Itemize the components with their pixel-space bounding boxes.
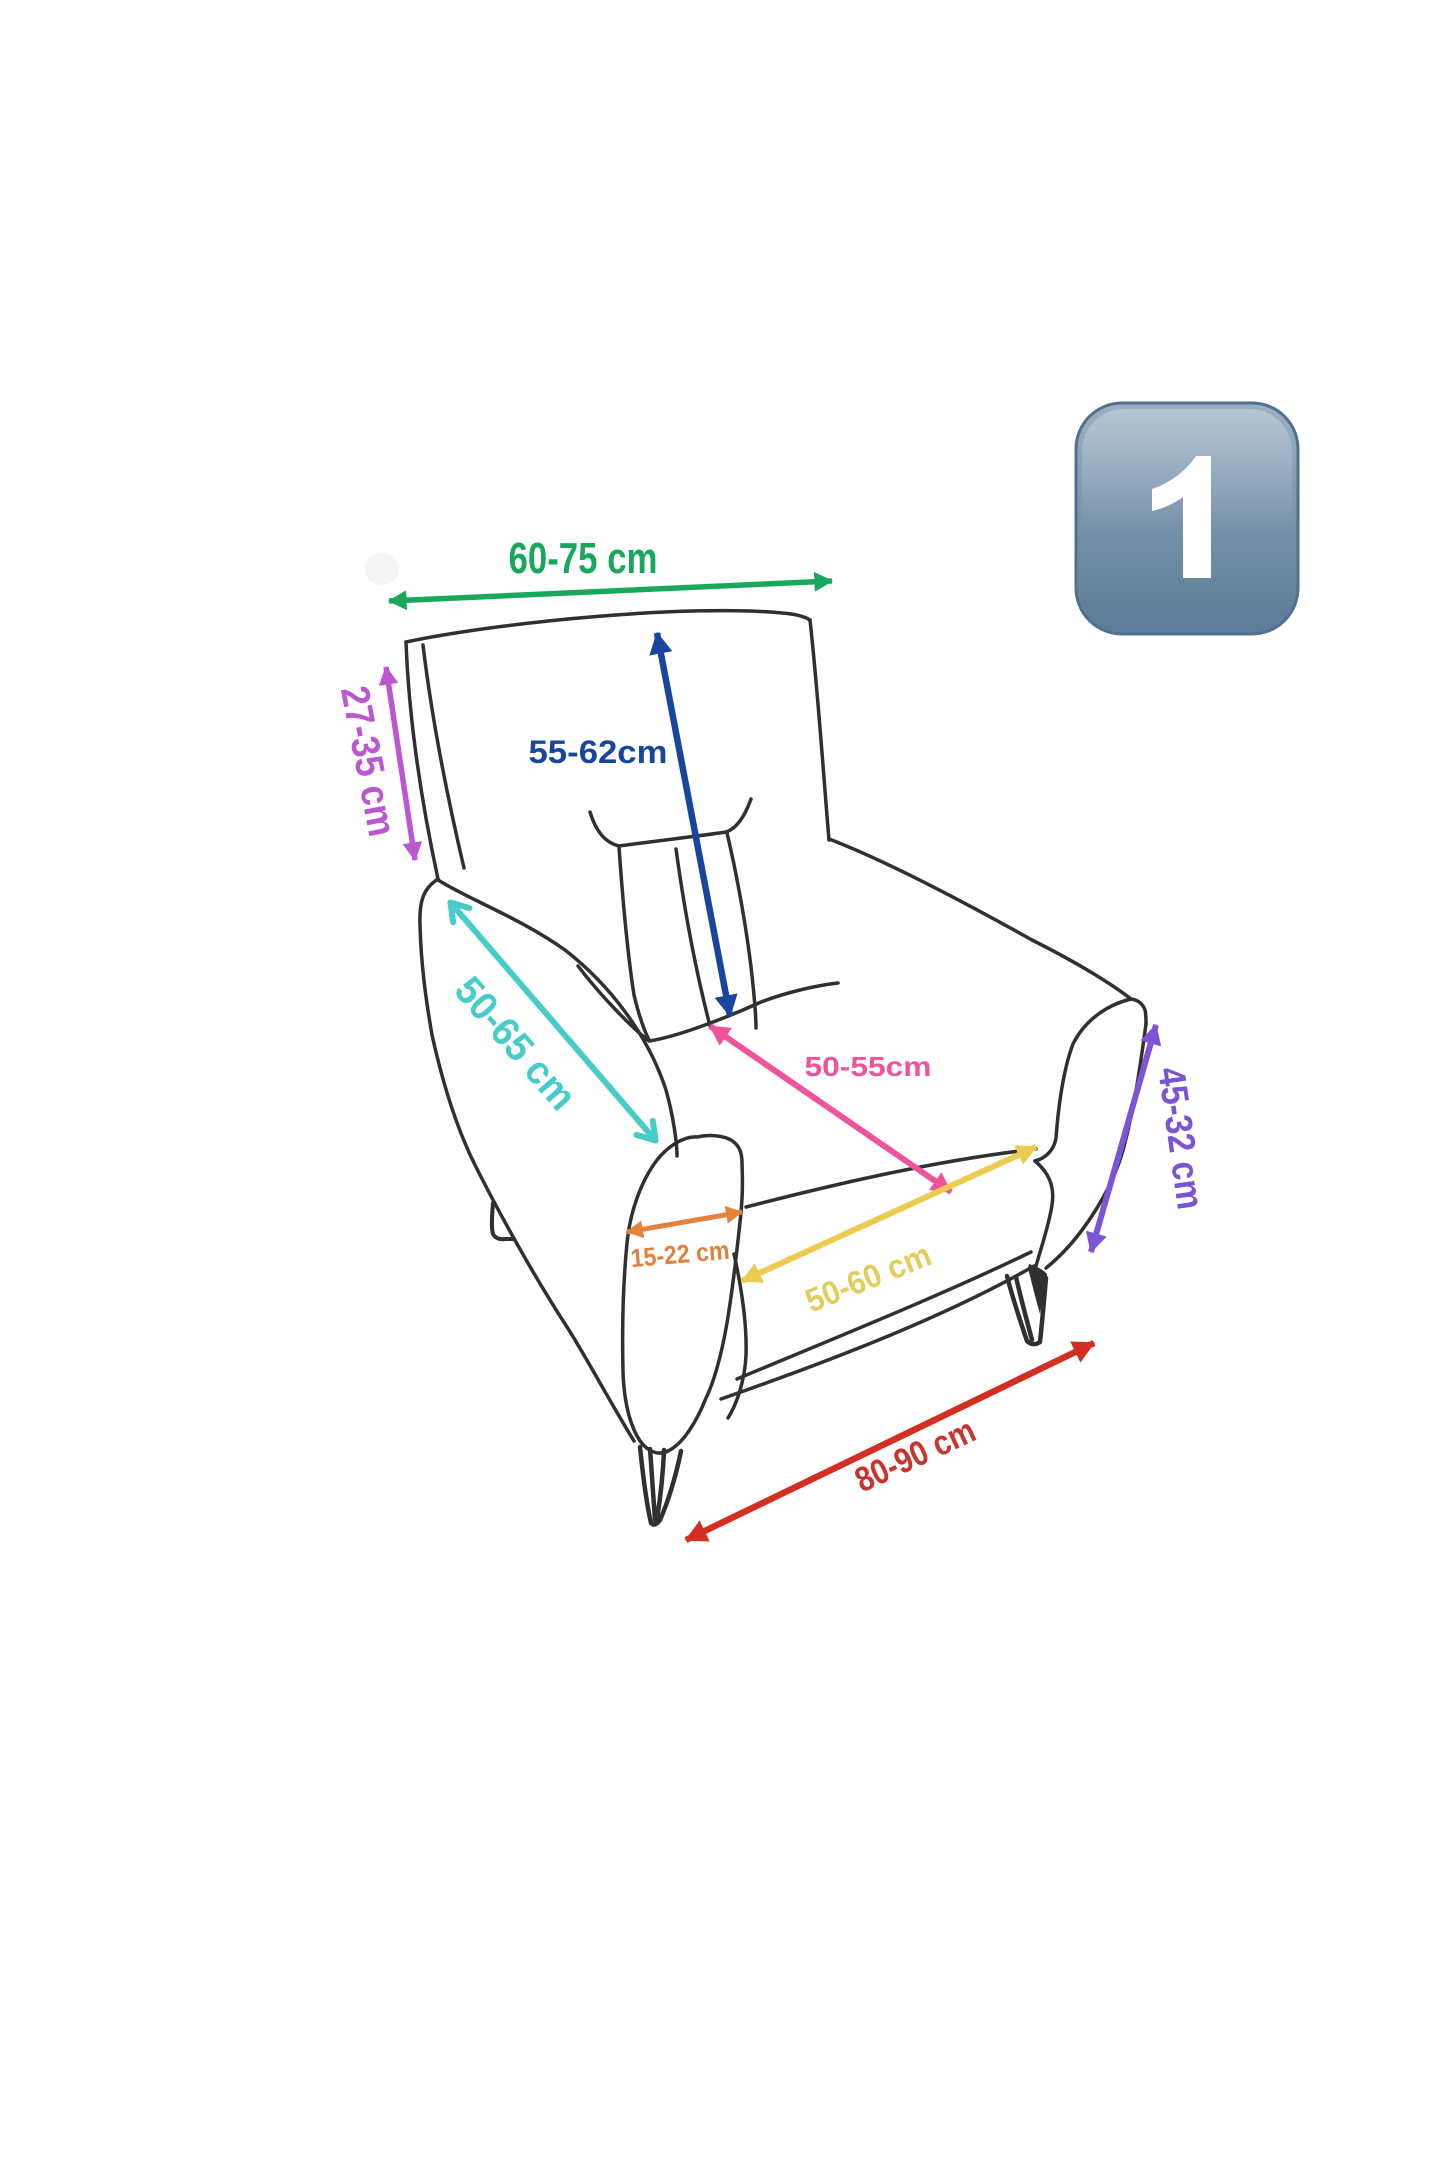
svg-text:50-55cm: 50-55cm <box>805 1051 932 1082</box>
svg-text:55-62cm: 55-62cm <box>529 734 668 770</box>
svg-text:60-75 cm: 60-75 cm <box>509 534 658 583</box>
